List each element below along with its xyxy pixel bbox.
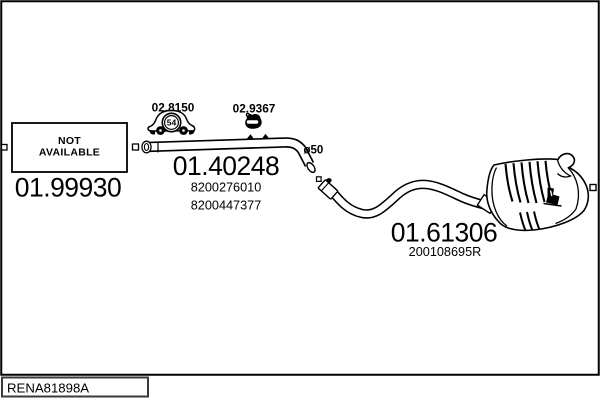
oe-ref-middle-pipe-1: 8200276010 [191,181,262,195]
part-number-middle-pipe[interactable]: 01.40248 [173,151,280,181]
flange-square-pipe-inlet [133,144,139,150]
drawing-code-box: RENA81898A [2,378,148,397]
oe-ref-rear-silencer: 200108695R [409,245,482,259]
accessory-code-2[interactable]: 02.9367 [233,102,276,116]
pipe-diameter-label: ø50 [304,145,324,157]
drawing-code-label: RENA81898A [7,381,89,396]
exhaust-parts-diagram: NOT AVAILABLE 01.99930 02.8150 54 02.936… [0,0,600,400]
part-number-rear-silencer[interactable]: 01.61306 [391,218,498,248]
badge-54-label: 54 [167,118,177,128]
hanger-square-right [590,185,596,191]
pipe-open-end-left [142,141,151,153]
part-number-front-section[interactable]: 01.99930 [15,173,122,203]
flange-square-mid [317,177,322,182]
oe-ref-middle-pipe-2: 8200447377 [191,199,262,213]
diagram-canvas: NOT AVAILABLE 01.99930 02.8150 54 02.936… [0,0,600,400]
not-available-line2: AVAILABLE [39,147,100,159]
flange-square-left-border [2,145,8,151]
front-section: NOT AVAILABLE 01.99930 [2,123,128,203]
not-available-line1: NOT [58,135,81,147]
